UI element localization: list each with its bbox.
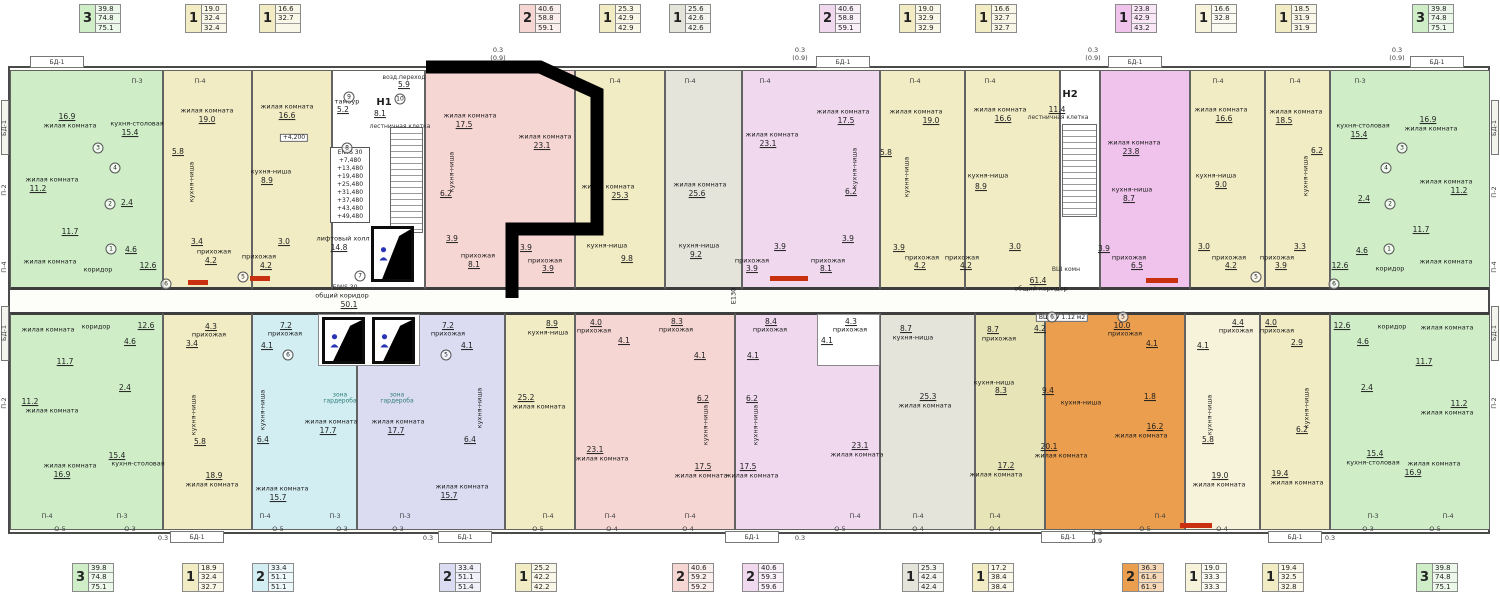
apartment-badge[interactable]: 119.032.932.9 bbox=[899, 4, 941, 33]
room-label: лестничная клетка bbox=[1028, 115, 1089, 121]
badge-area-value: 32.9 bbox=[916, 24, 940, 32]
room-label: 1 bbox=[1384, 244, 1395, 255]
elevation-level: +31,480 bbox=[333, 189, 367, 197]
elevation-level: +49,480 bbox=[333, 213, 367, 221]
room-label: 25.3 bbox=[920, 393, 937, 401]
badge-area-value: 42.2 bbox=[532, 583, 556, 591]
room-label: прихожая bbox=[268, 331, 302, 338]
badge-area-value: 51.1 bbox=[456, 573, 480, 582]
balcony-label: БД-1 bbox=[745, 534, 760, 541]
apartment-unit[interactable] bbox=[880, 312, 975, 530]
facade-label: О-4 bbox=[912, 525, 924, 533]
badge-area-value: 59.3 bbox=[759, 573, 783, 582]
room-label: кухня-ниша bbox=[968, 173, 1009, 180]
room-label: 5.8 bbox=[1202, 436, 1214, 444]
room-label: 8.7 bbox=[1123, 195, 1135, 203]
room-label: 18.5 bbox=[1276, 117, 1293, 125]
apartment-badge[interactable]: 125.342.942.9 bbox=[599, 4, 641, 33]
room-label: 17.5 bbox=[456, 121, 473, 129]
room-label: 3 bbox=[93, 143, 104, 154]
apartment-badge[interactable]: 233.451.151.1 bbox=[252, 563, 294, 592]
room-label: 8.1 bbox=[820, 265, 832, 273]
room-label: 4.2 bbox=[914, 262, 926, 270]
room-label: жилая комната bbox=[25, 408, 78, 415]
room-label: 18.9 bbox=[206, 472, 223, 480]
apartment-badge[interactable]: 240.658.859.1 bbox=[819, 4, 861, 33]
badge-area-value: 38.4 bbox=[989, 573, 1013, 582]
room-label: 17.7 bbox=[388, 427, 405, 435]
apartment-badge[interactable]: 240.659.359.6 bbox=[742, 563, 784, 592]
badge-area-value: 75.1 bbox=[1433, 583, 1457, 591]
room-label: жилая комната bbox=[673, 182, 726, 189]
room-label: 16.9 bbox=[54, 471, 71, 479]
room-label: жилая комната bbox=[674, 473, 727, 480]
room-label: кухня-ниша bbox=[449, 152, 456, 193]
elevator-icon bbox=[379, 333, 390, 348]
badge-area-value: 32.7 bbox=[992, 24, 1016, 32]
room-label: 6.2 bbox=[845, 188, 857, 196]
badge-areas: 40.659.359.6 bbox=[759, 564, 783, 591]
elevation-level: +19,480 bbox=[333, 173, 367, 181]
badge-areas: 19.032.432.4 bbox=[202, 5, 226, 32]
badge-area-value: 40.6 bbox=[759, 564, 783, 573]
apartment-unit[interactable] bbox=[1045, 312, 1185, 530]
room-label: 16.2 bbox=[1147, 423, 1164, 431]
room-label: 9.0 bbox=[1215, 181, 1227, 189]
room-label: кухня-ниша bbox=[528, 330, 569, 337]
room-label: 6.2 bbox=[746, 395, 758, 403]
room-label: 6.4 bbox=[257, 436, 269, 444]
room-label: 4.2 bbox=[205, 257, 217, 265]
room-label: 1.8 bbox=[1144, 393, 1156, 401]
room-label: 6.2 bbox=[697, 395, 709, 403]
stairwell-flight bbox=[1062, 124, 1097, 217]
room-label: кухня-ниша bbox=[189, 162, 196, 203]
room-label: общий коридор bbox=[1014, 286, 1067, 293]
room-label: +4,200 bbox=[280, 134, 308, 142]
badge-area-value: 58.8 bbox=[836, 14, 860, 23]
room-label: 9.4 bbox=[1042, 387, 1054, 395]
badge-area-value: 42.4 bbox=[919, 583, 943, 591]
room-label: 5.8 bbox=[172, 148, 184, 156]
badge-areas: 25.242.242.2 bbox=[532, 564, 556, 591]
room-label: 3.9 bbox=[1275, 262, 1287, 270]
room-label: прихожая bbox=[1260, 328, 1294, 335]
facade-label: П-2 bbox=[1490, 186, 1498, 197]
badge-areas: 39.874.875.1 bbox=[1433, 564, 1457, 591]
room-label: жилая комната bbox=[1420, 325, 1473, 332]
facade-label: (0.9) bbox=[1085, 54, 1100, 62]
balcony: БД-1 bbox=[170, 531, 224, 543]
room-label: 6 bbox=[283, 350, 294, 361]
badge-area-value: 43.2 bbox=[1132, 24, 1156, 32]
apartment-badge[interactable]: 339.874.875.1 bbox=[1416, 563, 1458, 592]
room-label: жилая комната bbox=[435, 484, 488, 491]
badge-areas: 18.932.432.7 bbox=[199, 564, 223, 591]
apartment-badge[interactable]: 119.432.532.8 bbox=[1262, 563, 1304, 592]
room-label: кухня-ниша bbox=[587, 243, 628, 250]
room-label: прихожая bbox=[833, 327, 867, 334]
room-label: кухня-столовая bbox=[111, 461, 164, 468]
facade-label: (0.9) bbox=[490, 54, 505, 62]
room-label: прихожая bbox=[431, 331, 465, 338]
facade-label: 0.3 bbox=[1092, 529, 1102, 537]
apartment-badge[interactable]: 236.361.661.9 bbox=[1122, 563, 1164, 592]
apartment-badge[interactable]: 119.032.432.4 bbox=[185, 4, 227, 33]
badge-area-value bbox=[1212, 24, 1236, 32]
badge-areas: 25.342.942.9 bbox=[616, 5, 640, 32]
facade-label: П-3 bbox=[131, 77, 142, 85]
room-label: 17.2 bbox=[998, 462, 1015, 470]
facade-label: 0.3 bbox=[795, 534, 805, 542]
room-label: 16.6 bbox=[995, 115, 1012, 123]
room-label: кухня-ниша bbox=[477, 388, 484, 429]
room-label: жилая комната bbox=[1407, 461, 1460, 468]
facade-label: П-4 bbox=[1442, 512, 1453, 520]
room-label: 4.2 bbox=[1034, 325, 1046, 333]
balcony-label: БД-1 bbox=[190, 534, 205, 541]
apartment-badge[interactable]: 339.874.875.1 bbox=[72, 563, 114, 592]
balcony-label: БД-1 bbox=[1061, 534, 1076, 541]
apartment-unit[interactable] bbox=[505, 312, 575, 530]
room-label: 17.5 bbox=[838, 117, 855, 125]
room-label: жилая комната bbox=[745, 132, 798, 139]
room-label: 3.9 bbox=[842, 235, 854, 243]
badge-areas: 19.033.333.3 bbox=[1202, 564, 1226, 591]
apartment-badge[interactable]: 118.531.931.9 bbox=[1275, 4, 1317, 33]
room-label: Н1 bbox=[376, 98, 391, 109]
facade-label: П-4 bbox=[684, 512, 695, 520]
badge-areas: 19.032.932.9 bbox=[916, 5, 940, 32]
badge-room-count: 1 bbox=[1196, 5, 1212, 32]
apartment-unit[interactable] bbox=[575, 312, 735, 530]
room-label: 12.6 bbox=[1332, 262, 1349, 270]
room-label: 15.4 bbox=[1351, 131, 1368, 139]
facade-label: П-4 bbox=[259, 512, 270, 520]
room-label: кухня-ниша bbox=[703, 405, 710, 446]
badge-room-count: 3 bbox=[73, 564, 89, 591]
room-label: 19.4 bbox=[1272, 470, 1289, 478]
floor-plan-canvas: БД-1БД-1БД-1БД-1БД-1БД-1БД-1БД-1БД-1EIWS… bbox=[0, 0, 1500, 597]
room-label: 25.6 bbox=[689, 190, 706, 198]
room-label: прихожая bbox=[461, 253, 495, 260]
room-label: 3 bbox=[1397, 143, 1408, 154]
apartment-unit[interactable] bbox=[1330, 312, 1490, 530]
room-label: 3.0 bbox=[1198, 243, 1210, 251]
badge-area-value: 42.9 bbox=[1132, 14, 1156, 23]
badge-room-count: 1 bbox=[900, 5, 916, 32]
facade-label: О-3 bbox=[392, 525, 404, 533]
room-label: 3.9 bbox=[774, 243, 786, 251]
badge-room-count: 1 bbox=[1116, 5, 1132, 32]
facade-label: П-4 bbox=[1490, 261, 1498, 272]
room-label: кухня-столовая bbox=[1336, 123, 1389, 130]
room-label: жилая комната bbox=[1404, 126, 1457, 133]
badge-area-value: 32.7 bbox=[199, 583, 223, 591]
room-label: зона гардероба bbox=[323, 393, 356, 406]
room-label: прихожая bbox=[577, 328, 611, 335]
room-label: 19.0 bbox=[923, 117, 940, 125]
badge-area-value: 32.4 bbox=[202, 24, 226, 32]
room-label: 5.8 bbox=[880, 149, 892, 157]
badge-room-count: 1 bbox=[1263, 564, 1279, 591]
badge-area-value: 31.9 bbox=[1292, 24, 1316, 32]
badge-area-value: 40.6 bbox=[689, 564, 713, 573]
badge-area-value: 19.0 bbox=[1202, 564, 1226, 573]
room-label: 9.8 bbox=[621, 255, 633, 263]
apartment-badge[interactable]: 125.642.642.6 bbox=[669, 4, 711, 33]
elevation-level: +43,480 bbox=[333, 205, 367, 213]
apartment-badge[interactable]: 125.242.242.2 bbox=[515, 563, 557, 592]
apartment-badge[interactable]: 339.874.875.1 bbox=[1412, 4, 1454, 33]
facade-label: О-5 bbox=[1139, 525, 1151, 533]
room-label: кухня-ниша bbox=[1196, 173, 1237, 180]
room-label: 3.0 bbox=[278, 238, 290, 246]
facade-label: П-3 bbox=[329, 512, 340, 520]
facade-label: 0.3 bbox=[1325, 534, 1335, 542]
balcony: БД-1 bbox=[816, 56, 870, 68]
balcony-label: БД-1 bbox=[50, 59, 65, 66]
facade-label: 0.3 bbox=[423, 534, 433, 542]
facade-label: П-3 bbox=[1354, 77, 1365, 85]
room-label: жилая комната bbox=[21, 327, 74, 334]
room-label: 12.6 bbox=[140, 262, 157, 270]
room-label: кухня-ниша bbox=[852, 148, 859, 189]
room-label: кухня-ниша bbox=[251, 169, 292, 176]
badge-areas: 39.874.875.1 bbox=[96, 5, 120, 32]
room-label: 23.8 bbox=[1123, 148, 1140, 156]
badge-areas: 19.432.532.8 bbox=[1279, 564, 1303, 591]
room-label: жилая комната bbox=[889, 109, 942, 116]
room-label: жилая комната bbox=[725, 473, 778, 480]
room-label: прихожая bbox=[242, 254, 276, 261]
balcony-label: БД-1 bbox=[458, 534, 473, 541]
facade-label: П-4 bbox=[604, 512, 615, 520]
room-label: жилая комната bbox=[1192, 482, 1245, 489]
room-label: 2.4 bbox=[121, 199, 133, 207]
badge-areas: 18.531.931.9 bbox=[1292, 5, 1316, 32]
room-label: 3.9 bbox=[893, 244, 905, 252]
facade-label: П-4 bbox=[759, 77, 770, 85]
badge-area-value: 39.8 bbox=[1429, 5, 1453, 14]
room-label: 3.3 bbox=[1294, 243, 1306, 251]
badge-area-value: 25.2 bbox=[532, 564, 556, 573]
room-label: 4.2 bbox=[1225, 262, 1237, 270]
facade-label: П-4 bbox=[1212, 77, 1223, 85]
apartment-badge[interactable]: 119.033.333.3 bbox=[1185, 563, 1227, 592]
apartment-badge[interactable]: 116.632.8 bbox=[1195, 4, 1237, 33]
apartment-unit[interactable] bbox=[163, 312, 252, 530]
room-label: 11.7 bbox=[62, 228, 79, 236]
badge-areas: 39.874.875.1 bbox=[1429, 5, 1453, 32]
facade-label: О-5 bbox=[532, 525, 544, 533]
apartment-unit[interactable] bbox=[965, 70, 1060, 290]
badge-room-count: 2 bbox=[1123, 564, 1139, 591]
room-label: 4 bbox=[110, 163, 121, 174]
apartment-badge[interactable]: 240.658.859.1 bbox=[519, 4, 561, 33]
apartment-badge[interactable]: 117.238.438.4 bbox=[972, 563, 1014, 592]
apartment-badge[interactable]: 123.842.943.2 bbox=[1115, 4, 1157, 33]
facade-label: 0.3 bbox=[493, 46, 503, 54]
room-label: 25.2 bbox=[518, 394, 535, 402]
room-label: 5 bbox=[1118, 312, 1129, 323]
room-label: кухня-ниша bbox=[974, 380, 1015, 387]
room-label: 3.9 bbox=[446, 235, 458, 243]
badge-room-count: 2 bbox=[673, 564, 689, 591]
facade-label: П-2 bbox=[0, 184, 8, 195]
room-label: 8.9 bbox=[546, 320, 558, 328]
room-label: жилая комната bbox=[23, 259, 76, 266]
apartment-badge[interactable]: 125.342.442.4 bbox=[902, 563, 944, 592]
balcony-label: БД-1 bbox=[1430, 59, 1445, 66]
apartment-badge[interactable]: 240.659.259.2 bbox=[672, 563, 714, 592]
badge-area-value: 16.6 bbox=[276, 5, 300, 14]
balcony: БД-1 bbox=[725, 531, 779, 543]
badge-area-value: 18.9 bbox=[199, 564, 223, 573]
room-label: 6.2 bbox=[1311, 147, 1323, 155]
room-label: 4.1 bbox=[1197, 342, 1209, 350]
facade-label: П-2 bbox=[0, 397, 8, 408]
facade-label: П-4 bbox=[0, 261, 8, 272]
facade-label: П-4 bbox=[989, 512, 1000, 520]
badge-room-count: 1 bbox=[1186, 564, 1202, 591]
room-label: 23.1 bbox=[852, 442, 869, 450]
heating-marker bbox=[250, 276, 270, 281]
room-label: кухня-ниша bbox=[753, 405, 760, 446]
badge-area-value: 42.6 bbox=[686, 24, 710, 32]
apartment-badge[interactable]: 116.632.7 bbox=[259, 4, 301, 33]
badge-area-value: 33.3 bbox=[1202, 583, 1226, 591]
balcony-label: БД-1 bbox=[836, 59, 851, 66]
room-label: коридор bbox=[84, 267, 113, 274]
room-label: 8.3 bbox=[995, 387, 1007, 395]
room-label: жилая комната bbox=[1114, 433, 1167, 440]
facade-label: БД-1 bbox=[0, 120, 8, 136]
room-label: жилая комната bbox=[518, 134, 571, 141]
badge-area-value: 42.6 bbox=[686, 14, 710, 23]
room-label: жилая комната bbox=[25, 177, 78, 184]
room-label: 4.1 bbox=[618, 337, 630, 345]
badge-room-count: 3 bbox=[1417, 564, 1433, 591]
apartment-badge[interactable]: 118.932.432.7 bbox=[182, 563, 224, 592]
apartment-unit[interactable] bbox=[975, 312, 1045, 530]
room-label: 19.0 bbox=[199, 116, 216, 124]
stairwell-flight bbox=[390, 127, 423, 233]
badge-area-value: 42.4 bbox=[919, 573, 943, 582]
badge-areas: 25.342.442.4 bbox=[919, 564, 943, 591]
room-label: 4.1 bbox=[747, 352, 759, 360]
badge-area-value: 18.5 bbox=[1292, 5, 1316, 14]
badge-area-value: 39.8 bbox=[1433, 564, 1457, 573]
badge-area-value: 51.1 bbox=[269, 583, 293, 591]
badge-room-count: 1 bbox=[600, 5, 616, 32]
badge-area-value: 33.3 bbox=[1202, 573, 1226, 582]
room-label: жилая комната bbox=[180, 108, 233, 115]
badge-room-count: 3 bbox=[1413, 5, 1429, 32]
room-label: 6.2 bbox=[1296, 426, 1308, 434]
room-label: 11.7 bbox=[1413, 226, 1430, 234]
badge-areas: 16.632.732.7 bbox=[992, 5, 1016, 32]
room-label: прихожая bbox=[192, 332, 226, 339]
apartment-badge[interactable]: 339.874.875.1 bbox=[79, 4, 121, 33]
facade-label: (0.9) bbox=[792, 54, 807, 62]
badge-room-count: 2 bbox=[253, 564, 269, 591]
room-label: жилая комната bbox=[1269, 109, 1322, 116]
facade-label: П-4 bbox=[194, 77, 205, 85]
badge-area-value: 42.2 bbox=[532, 573, 556, 582]
room-label: кухня-ниша bbox=[260, 390, 267, 431]
room-label: жилая комната bbox=[443, 113, 496, 120]
room-label: жилая комната bbox=[512, 404, 565, 411]
heating-marker bbox=[1146, 278, 1178, 283]
badge-room-count: 1 bbox=[260, 5, 276, 32]
room-label: 15.4 bbox=[1367, 450, 1384, 458]
badge-area-value: 75.1 bbox=[89, 583, 113, 591]
room-label: 15.7 bbox=[441, 492, 458, 500]
room-label: жилая комната bbox=[43, 123, 96, 130]
badge-room-count: 1 bbox=[976, 5, 992, 32]
badge-room-count: 1 bbox=[186, 5, 202, 32]
heating-marker bbox=[1180, 523, 1212, 528]
room-label: 23.1 bbox=[587, 446, 604, 454]
room-label: 4.2 bbox=[260, 262, 272, 270]
facade-label: О-4 bbox=[682, 525, 694, 533]
apartment-unit[interactable] bbox=[575, 70, 665, 290]
room-label: кухня-ниша bbox=[1112, 187, 1153, 194]
badge-area-value: 74.8 bbox=[1433, 573, 1457, 582]
room-label: 5.8 bbox=[194, 438, 206, 446]
facade-label: О-4 bbox=[1216, 525, 1228, 533]
badge-room-count: 1 bbox=[516, 564, 532, 591]
elevator-shaft bbox=[371, 226, 414, 282]
badge-area-value: 25.3 bbox=[616, 5, 640, 14]
room-label: 3.4 bbox=[186, 340, 198, 348]
badge-area-value: 51.1 bbox=[269, 573, 293, 582]
facade-label: БД-1 bbox=[0, 325, 8, 341]
badge-area-value: 74.8 bbox=[96, 14, 120, 23]
facade-label: 0.3 bbox=[158, 534, 168, 542]
room-label: 11.4 bbox=[1049, 106, 1066, 114]
apartment-unit[interactable] bbox=[10, 312, 163, 530]
room-label: прихожая bbox=[1108, 331, 1142, 338]
badge-area-value: 59.1 bbox=[536, 24, 560, 32]
apartment-badge[interactable]: 116.632.732.7 bbox=[975, 4, 1017, 33]
elevator-shaft bbox=[372, 317, 415, 364]
room-label: 4.6 bbox=[125, 246, 137, 254]
badge-area-value: 51.4 bbox=[456, 583, 480, 591]
room-label: 4.1 bbox=[821, 337, 833, 345]
room-label: жилая комната bbox=[260, 104, 313, 111]
room-label: 3.9 bbox=[520, 244, 532, 252]
apartment-badge[interactable]: 233.451.151.4 bbox=[439, 563, 481, 592]
room-label: кухня-ниша bbox=[1207, 395, 1214, 436]
room-label: жилая комната bbox=[185, 482, 238, 489]
room-label: 3.0 bbox=[1009, 243, 1021, 251]
badge-room-count: 3 bbox=[80, 5, 96, 32]
badge-area-value: 40.6 bbox=[836, 5, 860, 14]
room-label: жилая комната bbox=[898, 403, 951, 410]
heating-marker bbox=[770, 276, 808, 281]
room-label: жилая комната bbox=[43, 463, 96, 470]
elevation-level: +37,480 bbox=[333, 197, 367, 205]
room-label: жилая комната bbox=[1270, 480, 1323, 487]
room-label: 4.1 bbox=[1146, 340, 1158, 348]
badge-area-value: 31.9 bbox=[1292, 14, 1316, 23]
badge-area-value: 42.9 bbox=[616, 24, 640, 32]
room-label: 50.1 bbox=[341, 301, 358, 309]
room-label: 6 bbox=[1329, 279, 1340, 290]
room-label: 12.6 bbox=[1334, 322, 1351, 330]
